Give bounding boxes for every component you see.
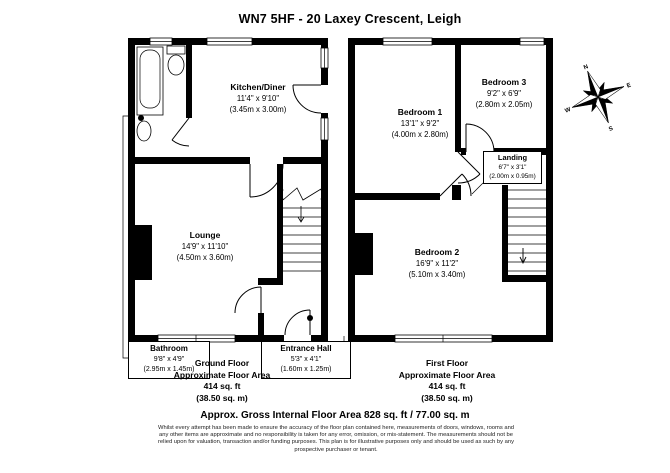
room-name: Bedroom 3: [449, 77, 559, 88]
room-size-metric: (3.45m x 3.00m): [203, 104, 313, 115]
room-size-imperial: 9'2" x 6'9": [449, 88, 559, 99]
room-name: Kitchen/Diner: [203, 82, 313, 93]
room-size-metric: (2.00m x 0.95m): [484, 172, 541, 182]
compass-east-label: E: [626, 82, 632, 89]
compass-rose-icon: N E S W: [552, 52, 645, 146]
room-label-bedroom3: Bedroom 3 9'2" x 6'9" (2.80m x 2.05m): [449, 77, 559, 110]
room-size-metric: (5.10m x 3.40m): [382, 269, 492, 280]
room-label-bedroom1: Bedroom 1 13'1" x 9'2" (4.00m x 2.80m): [365, 107, 475, 140]
room-label-lounge: Lounge 14'9" x 11'10" (4.50m x 3.60m): [150, 230, 260, 263]
first-floor-caption: First Floor Approximate Floor Area 414 s…: [372, 358, 522, 404]
compass-north-label: N: [583, 64, 589, 71]
door-icon: [172, 85, 321, 335]
floor-area-label: Approximate Floor Area: [372, 370, 522, 382]
floor-area-sqft: 414 sq. ft: [372, 381, 522, 393]
sink-icon: [137, 121, 151, 141]
room-label-bedroom2: Bedroom 2 16'9" x 11'2" (5.10m x 3.40m): [382, 247, 492, 280]
room-label-landing: Landing 6'7" x 3'1" (2.00m x 0.95m): [483, 151, 542, 184]
floor-area-sqft: 414 sq. ft: [147, 381, 297, 393]
floor-name: Ground Floor: [147, 358, 297, 370]
floor-name: First Floor: [372, 358, 522, 370]
room-size-imperial: 16'9" x 11'2": [382, 258, 492, 269]
room-name: Lounge: [150, 230, 260, 241]
toilet-icon: [167, 46, 185, 75]
stairs-icon: [508, 190, 546, 271]
floor-area-sqm: (38.50 sq. m): [372, 393, 522, 405]
room-name: Landing: [484, 153, 541, 163]
floorplan-page: WN7 5HF - 20 Laxey Crescent, Leigh: [0, 0, 670, 473]
compass-west-label: W: [564, 107, 572, 115]
compass-south-label: S: [608, 126, 614, 133]
gross-internal-area: Approx. Gross Internal Floor Area 828 sq…: [0, 410, 670, 421]
floorplan-drawing: N E S W: [0, 0, 670, 473]
room-size-imperial: 13'1" x 9'2": [365, 118, 475, 129]
room-name: Bathroom: [130, 344, 208, 355]
room-name: Bedroom 2: [382, 247, 492, 258]
floor-area-sqm: (38.50 sq. m): [147, 393, 297, 405]
bathtub-icon: [137, 47, 163, 115]
floor-area-label: Approximate Floor Area: [147, 370, 297, 382]
room-size-metric: (2.80m x 2.05m): [449, 99, 559, 110]
disclaimer-text: Whilst every attempt has been made to en…: [155, 425, 517, 454]
room-size-imperial: 6'7" x 3'1": [484, 163, 541, 173]
room-size-metric: (4.50m x 3.60m): [150, 252, 260, 263]
stairs-icon: [283, 186, 321, 271]
chimney-breast: [355, 233, 373, 275]
room-size-imperial: 14'9" x 11'10": [150, 241, 260, 252]
room-label-kitchen: Kitchen/Diner 11'4" x 9'10" (3.45m x 3.0…: [203, 82, 313, 115]
ground-floor-caption: Ground Floor Approximate Floor Area 414 …: [147, 358, 297, 404]
room-name: Entrance Hall: [263, 344, 349, 355]
room-size-imperial: 11'4" x 9'10": [203, 93, 313, 104]
label-leader-line: [472, 183, 483, 194]
room-size-metric: (4.00m x 2.80m): [365, 129, 475, 140]
